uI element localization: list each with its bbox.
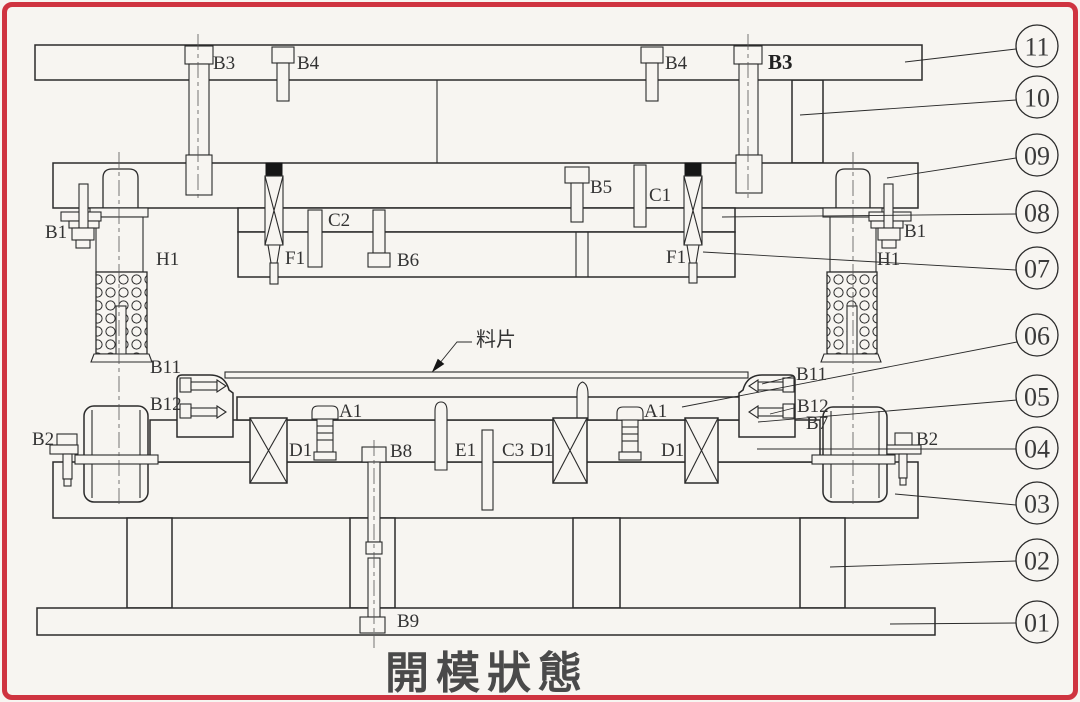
spacer-block (573, 518, 620, 608)
svg-text:11: 11 (1024, 33, 1049, 62)
label-b12-left: B12 (150, 394, 182, 415)
label-d1-mid: D1 (530, 440, 553, 461)
cage-foot-right (821, 354, 881, 362)
lifter-bracket-left (177, 375, 233, 437)
label-b7: B7 (806, 413, 828, 434)
label-b2-left: B2 (32, 429, 54, 450)
label-b2-right: B2 (916, 429, 938, 450)
upper-die-riser (792, 80, 823, 163)
upper-clamp-plate (53, 163, 918, 208)
balloon-02: 02 (830, 539, 1058, 581)
svg-text:09: 09 (1024, 142, 1050, 171)
lifter-bracket-right (739, 375, 795, 437)
cage-pin-left (116, 306, 126, 354)
material-strip (225, 372, 748, 378)
spring-block-d1-right (685, 418, 718, 483)
balloon-03: 03 (895, 482, 1058, 524)
label-b4-left: B4 (297, 53, 320, 74)
pin-e1 (435, 402, 447, 470)
svg-text:06: 06 (1024, 322, 1050, 351)
bushing-flange-left (75, 455, 158, 464)
dowel-pin-c3 (482, 430, 493, 510)
spacer-block (800, 518, 845, 608)
label-b6: B6 (397, 250, 419, 271)
strip-label: 料片 (476, 328, 516, 351)
cage-pin-right (847, 306, 857, 354)
spring-block-d1-mid (553, 418, 587, 483)
svg-text:04: 04 (1024, 435, 1050, 464)
label-c1: C1 (649, 185, 671, 206)
label-b3-right: B3 (768, 50, 793, 74)
label-b4-right: B4 (665, 53, 688, 74)
label-b11-left: B11 (150, 357, 181, 378)
label-b11-right: B11 (796, 364, 827, 385)
svg-text:01: 01 (1024, 609, 1050, 638)
svg-text:05: 05 (1024, 383, 1050, 412)
bolt-b3-left (185, 46, 213, 195)
label-f1-right: F1 (666, 247, 686, 268)
label-c3: C3 (502, 440, 524, 461)
label-b1-right: B1 (904, 221, 926, 242)
label-f1-left: F1 (285, 248, 305, 269)
drawing-page: 料片 11 10 09 08 (0, 0, 1080, 702)
svg-text:07: 07 (1024, 255, 1050, 284)
label-c2: C2 (328, 210, 350, 231)
bottom-base-plate (37, 608, 935, 635)
dowel-pin-c1 (634, 165, 646, 227)
label-b8: B8 (390, 441, 412, 462)
spring-block-d1-left (250, 418, 287, 483)
dowel-pin-c2 (308, 210, 322, 267)
svg-text:03: 03 (1024, 490, 1050, 519)
svg-text:08: 08 (1024, 199, 1050, 228)
label-d1-right: D1 (661, 440, 684, 461)
bushing-flange-right (812, 455, 895, 464)
svg-text:10: 10 (1024, 84, 1050, 113)
label-h1-right: H1 (877, 249, 900, 270)
label-b9: B9 (397, 611, 419, 632)
guide-post-left (96, 217, 143, 272)
label-e1: E1 (455, 440, 476, 461)
label-a1-right: A1 (644, 401, 667, 422)
lifter-pin (577, 382, 588, 420)
label-b3-left: B3 (213, 53, 235, 74)
label-a1-left: A1 (339, 401, 362, 422)
label-b1-left: B1 (45, 222, 67, 243)
label-b5: B5 (590, 177, 612, 198)
balloon-10: 10 (800, 76, 1058, 118)
cage-foot-left (91, 354, 152, 362)
upper-die-assembly (35, 45, 922, 362)
guide-bushing-left (84, 406, 148, 502)
die-assembly-drawing: 料片 11 10 09 08 (0, 0, 1080, 702)
spacer-block (127, 518, 172, 608)
balloon-11: 11 (905, 25, 1058, 67)
svg-text:02: 02 (1024, 547, 1050, 576)
label-h1-left: H1 (156, 249, 179, 270)
label-d1-left: D1 (289, 440, 312, 461)
strip-callout: 料片 (433, 328, 516, 371)
drawing-title: 開模狀態 (385, 649, 589, 698)
